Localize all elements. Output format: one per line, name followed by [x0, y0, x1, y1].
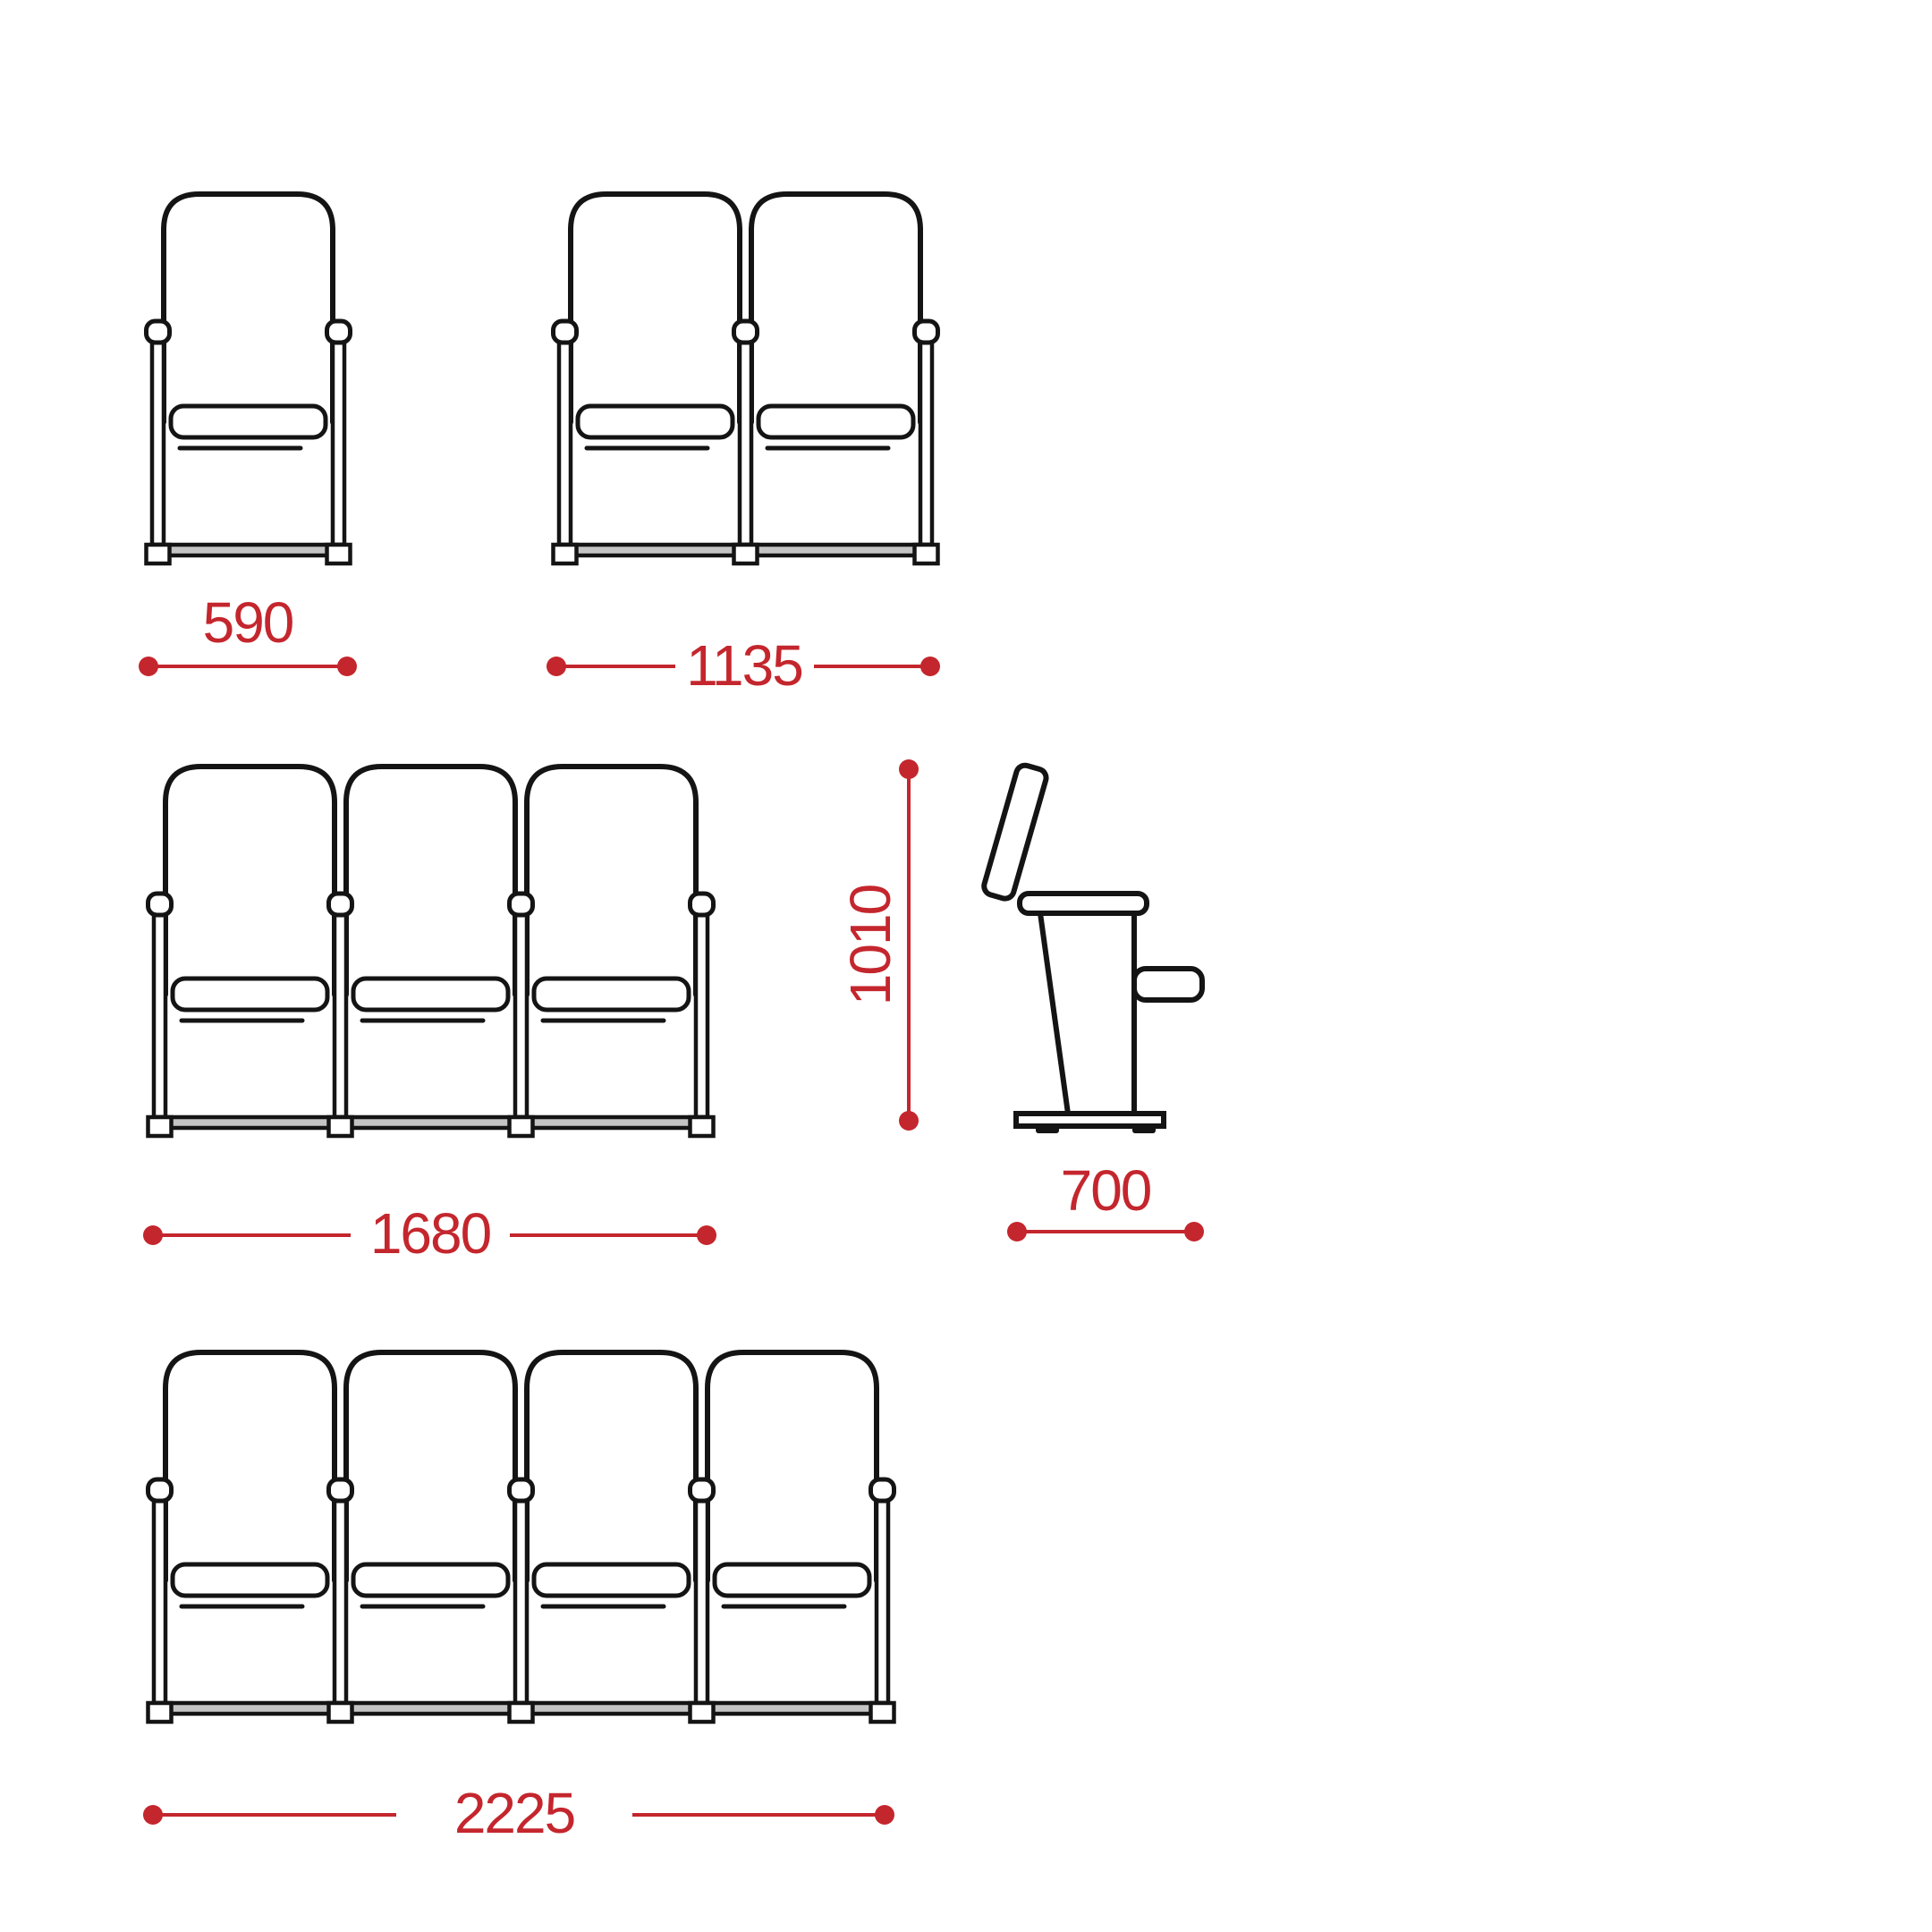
armrest-knob	[691, 1479, 714, 1501]
backrest	[165, 1352, 335, 1580]
armrest-post	[696, 1501, 708, 1703]
armrest-knob	[510, 894, 533, 915]
armrest-post	[559, 343, 571, 545]
armrest-knob	[329, 1479, 352, 1501]
armrest-knob	[329, 894, 352, 915]
seating-dimension-diagram: 590 1135 1680 1010 700 2225	[0, 0, 1932, 1932]
foot	[329, 1703, 352, 1722]
backrest	[708, 1352, 877, 1580]
folded-seat	[715, 1564, 869, 1606]
armrest-post	[920, 343, 932, 545]
armrest-post	[877, 1501, 888, 1703]
base-rail	[154, 1117, 708, 1128]
backrest	[165, 767, 335, 995]
armrest-knob	[510, 1479, 533, 1501]
dimension-endpoint-dot	[1184, 1222, 1204, 1241]
folded-seat	[353, 979, 508, 1021]
armrest-knob	[327, 321, 351, 343]
armrest-knob	[871, 1479, 894, 1501]
dimension-endpoint-dot	[899, 759, 919, 779]
backrest-side	[982, 763, 1048, 901]
armrest-post	[152, 343, 164, 545]
armrest-post	[154, 1501, 165, 1703]
dimension-endpoint-dot	[143, 1805, 163, 1825]
dimension-endpoint-dot	[139, 657, 158, 676]
folded-seat	[534, 1564, 689, 1606]
dimension-label-overall-depth: 700	[1061, 1162, 1151, 1219]
dimension-label-overall-height: 1010	[842, 885, 899, 1005]
foot	[510, 1117, 533, 1136]
armrest-knob	[554, 321, 577, 343]
seat-front-edge	[1040, 913, 1068, 1114]
armrest-post	[696, 915, 708, 1117]
backrest	[346, 767, 515, 995]
armrest-knob	[148, 1479, 172, 1501]
foot	[148, 1703, 172, 1722]
foot	[734, 545, 758, 563]
folded-seat	[173, 979, 327, 1021]
side-view-drawing	[982, 763, 1202, 1133]
folded-seat	[578, 406, 733, 448]
foot	[691, 1117, 714, 1136]
foot	[147, 545, 170, 563]
armrest-post	[515, 915, 527, 1117]
armrest-knob	[915, 321, 938, 343]
foot	[329, 1117, 352, 1136]
dimension-endpoint-dot	[143, 1225, 163, 1245]
backrest	[571, 194, 740, 422]
dimension-label-single-width: 590	[203, 594, 293, 651]
dimension-endpoint-dot	[337, 657, 357, 676]
backrest	[164, 194, 333, 422]
dimension-label-triple-width: 1680	[370, 1205, 490, 1262]
folded-seat	[534, 979, 689, 1021]
dimension-endpoint-dot	[899, 1111, 919, 1131]
armrest-post	[154, 915, 165, 1117]
floor-base-plate	[1016, 1114, 1164, 1126]
foot	[510, 1703, 533, 1722]
armrest-post	[515, 1501, 527, 1703]
armrest-post	[335, 915, 346, 1117]
foot	[1036, 1125, 1059, 1133]
folded-seat	[171, 406, 326, 448]
armrest-knob	[734, 321, 758, 343]
backrest	[527, 1352, 696, 1580]
foot	[871, 1703, 894, 1722]
triple-seat-front-drawing	[148, 767, 714, 1136]
folded-seat	[758, 406, 913, 448]
armrest-knob	[148, 894, 172, 915]
foot	[148, 1117, 172, 1136]
dimension-label-double-width: 1135	[686, 637, 802, 694]
foot	[1132, 1125, 1156, 1133]
dimension-endpoint-dot	[920, 657, 940, 676]
backrest	[751, 194, 920, 422]
dimension-endpoint-dot	[1007, 1222, 1027, 1241]
seat-side	[1020, 894, 1147, 913]
foot	[327, 545, 351, 563]
backrest	[527, 767, 696, 995]
armrest-knob	[691, 894, 714, 915]
dimension-endpoint-dot	[547, 657, 566, 676]
foot	[915, 545, 938, 563]
single-seat-front-drawing	[147, 194, 351, 563]
folded-seat	[353, 1564, 508, 1606]
armrest-post	[335, 1501, 346, 1703]
double-seat-front-drawing	[554, 194, 938, 563]
quad-seat-front-drawing	[148, 1352, 894, 1722]
dimension-line-single-width	[139, 657, 357, 676]
dimension-endpoint-dot	[697, 1225, 716, 1245]
armrest-knob	[147, 321, 170, 343]
folded-seat	[173, 1564, 327, 1606]
foot	[554, 545, 577, 563]
base-rail	[152, 545, 344, 555]
dimension-line-overall-depth	[1007, 1222, 1204, 1241]
backrest	[346, 1352, 515, 1580]
armrest-post	[740, 343, 751, 545]
diagram-line-art	[0, 0, 1932, 1932]
foot	[691, 1703, 714, 1722]
dimension-endpoint-dot	[875, 1805, 894, 1825]
armrest-post	[333, 343, 344, 545]
dimension-label-quad-width: 2225	[454, 1784, 574, 1842]
armrest-side	[1134, 969, 1202, 1000]
